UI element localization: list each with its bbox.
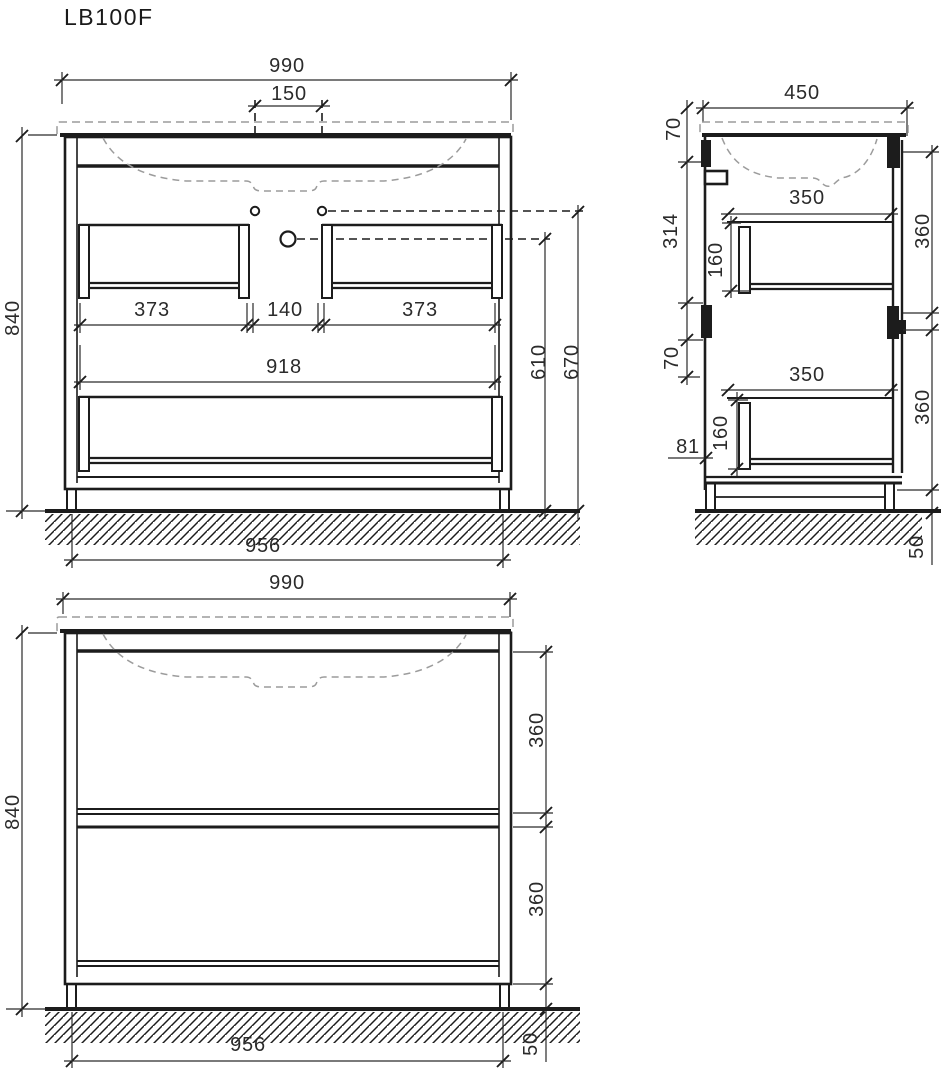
- dim-side-upper-drawer-depth: 350: [789, 188, 825, 208]
- wall-rail: [705, 171, 727, 184]
- front-bracket-mid: [887, 306, 899, 339]
- bottom-view: [6, 592, 580, 1068]
- dim-front-faucet-height: 610: [529, 344, 549, 380]
- mount-hole-right: [318, 207, 326, 215]
- drawing-linework: [0, 0, 944, 1071]
- dim-side-top-offset: 70: [664, 117, 684, 141]
- dim-side-lower-front: 360: [913, 389, 933, 425]
- wall-bracket-top: [701, 140, 711, 167]
- dim-bottom-overall-height: 840: [3, 794, 23, 830]
- dim-bottom-lower-front: 360: [527, 881, 547, 917]
- side-view: [668, 100, 941, 565]
- technical-drawing-sheet: LB100F 990 150 373 140 373 918 956 840 6…: [0, 0, 944, 1071]
- front-legs: [67, 489, 509, 510]
- bottom-legs: [67, 984, 509, 1008]
- dim-side-lower-drawer-depth: 350: [789, 365, 825, 385]
- dim-side-upper-front: 360: [913, 213, 933, 249]
- model-number: LB100F: [64, 6, 154, 29]
- ground-hatch-bottom: [45, 1012, 580, 1043]
- dim-front-base-width: 956: [245, 536, 281, 556]
- dim-side-overall-depth: 450: [784, 83, 820, 103]
- dim-bottom-upper-front: 360: [527, 712, 547, 748]
- front-bracket-top: [887, 137, 900, 168]
- dim-side-mid-offset: 70: [662, 346, 682, 370]
- mount-hole-left: [251, 207, 259, 215]
- dim-side-upper-section: 314: [661, 213, 681, 249]
- faucet-hole: [281, 232, 296, 247]
- dim-bottom-base-width: 956: [230, 1035, 266, 1055]
- dim-front-hole-spacing: 150: [271, 84, 307, 104]
- ground-hatch-front: [45, 514, 580, 545]
- dim-side-lower-drawer-height: 160: [711, 415, 731, 451]
- dim-side-back-clearance: 81: [676, 437, 700, 457]
- dim-front-interior-width: 918: [266, 357, 302, 377]
- side-legs: [706, 483, 894, 509]
- ground-hatch-side: [695, 514, 922, 545]
- dim-front-left-drawer: 373: [134, 300, 170, 320]
- side-lower-drawer: [727, 398, 892, 469]
- dim-front-right-drawer: 373: [402, 300, 438, 320]
- dim-front-hole-height: 670: [562, 344, 582, 380]
- dim-side-plinth: 50: [907, 535, 927, 559]
- dim-front-center-gap: 140: [267, 300, 303, 320]
- sink-hidden-outline-side: [722, 138, 877, 186]
- dim-front-overall-width: 990: [269, 56, 305, 76]
- side-upper-drawer: [727, 222, 892, 293]
- wall-bracket-mid: [701, 305, 712, 338]
- dim-front-overall-height: 840: [3, 300, 23, 336]
- dim-bottom-plinth: 50: [521, 1032, 541, 1056]
- dim-bottom-overall-width: 990: [269, 573, 305, 593]
- dim-side-upper-drawer-height: 160: [706, 242, 726, 278]
